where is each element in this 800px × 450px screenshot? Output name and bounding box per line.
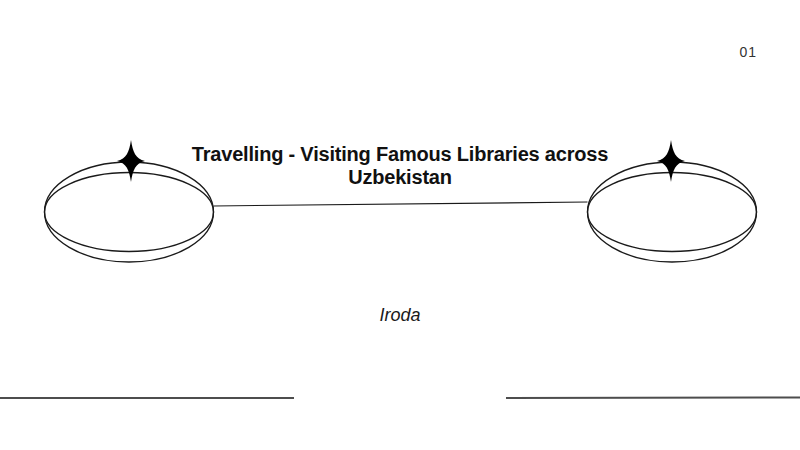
connector-line [214, 202, 588, 206]
footer-rule-right [506, 398, 800, 399]
slide-title: Travelling - Visiting Famous Libraries a… [130, 143, 670, 189]
slide-title-line-2: Uzbekistan [130, 166, 670, 189]
slide-title-line-1: Travelling - Visiting Famous Libraries a… [130, 143, 670, 166]
slide-canvas: 01 Travelling - Visiting Famous Librarie… [0, 0, 800, 450]
author-subtitle: Iroda [379, 305, 420, 326]
decoration-layer [0, 0, 800, 450]
page-number: 01 [739, 44, 757, 60]
